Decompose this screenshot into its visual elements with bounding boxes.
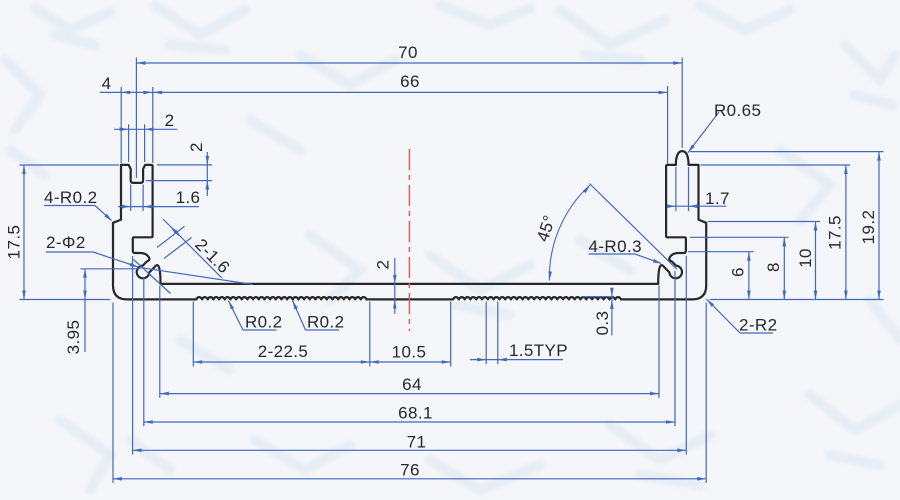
svg-text:4-R0.2: 4-R0.2 [44,188,97,207]
svg-text:8: 8 [764,262,783,272]
svg-text:10: 10 [796,248,815,268]
svg-text:10.5: 10.5 [392,343,427,362]
svg-text:70: 70 [398,43,418,62]
svg-text:64: 64 [402,375,422,394]
svg-text:0.3: 0.3 [593,311,612,336]
svg-text:2: 2 [374,260,393,270]
svg-text:1.6: 1.6 [176,188,201,207]
svg-text:76: 76 [400,461,420,480]
svg-text:R0.65: R0.65 [714,101,761,120]
svg-text:2: 2 [165,111,175,130]
svg-text:4-R0.3: 4-R0.3 [589,237,642,256]
svg-text:2: 2 [187,142,206,152]
svg-text:6: 6 [729,267,748,277]
svg-text:R0.2: R0.2 [307,313,345,332]
svg-text:3.95: 3.95 [64,320,83,355]
svg-text:17.5: 17.5 [5,225,24,260]
svg-text:17.5: 17.5 [826,215,845,250]
svg-text:2-R2: 2-R2 [739,316,777,335]
svg-text:19.2: 19.2 [859,210,878,245]
svg-text:2-22.5: 2-22.5 [258,342,309,361]
svg-text:4: 4 [102,74,112,93]
svg-text:2-Φ2: 2-Φ2 [46,233,86,252]
svg-text:68.1: 68.1 [398,404,433,423]
svg-text:1.5TYP: 1.5TYP [509,341,568,360]
svg-text:R0.2: R0.2 [245,313,283,332]
svg-text:71: 71 [407,433,427,452]
svg-text:66: 66 [400,72,420,91]
svg-text:1.7: 1.7 [705,189,730,208]
